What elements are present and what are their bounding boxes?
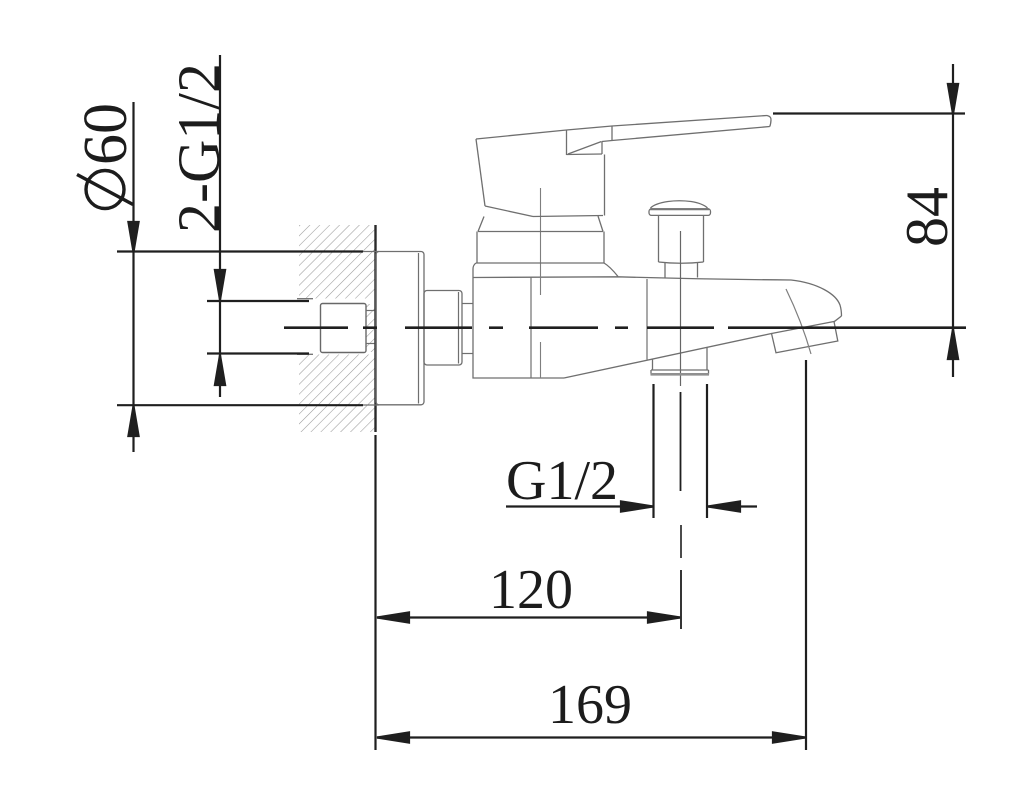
svg-text:G1/2: G1/2 — [506, 450, 618, 512]
svg-text:84: 84 — [894, 187, 960, 247]
svg-text:120: 120 — [489, 559, 573, 621]
svg-text:169: 169 — [548, 674, 632, 736]
svg-text:2-G1/2: 2-G1/2 — [166, 63, 232, 233]
svg-text:60: 60 — [72, 103, 140, 165]
